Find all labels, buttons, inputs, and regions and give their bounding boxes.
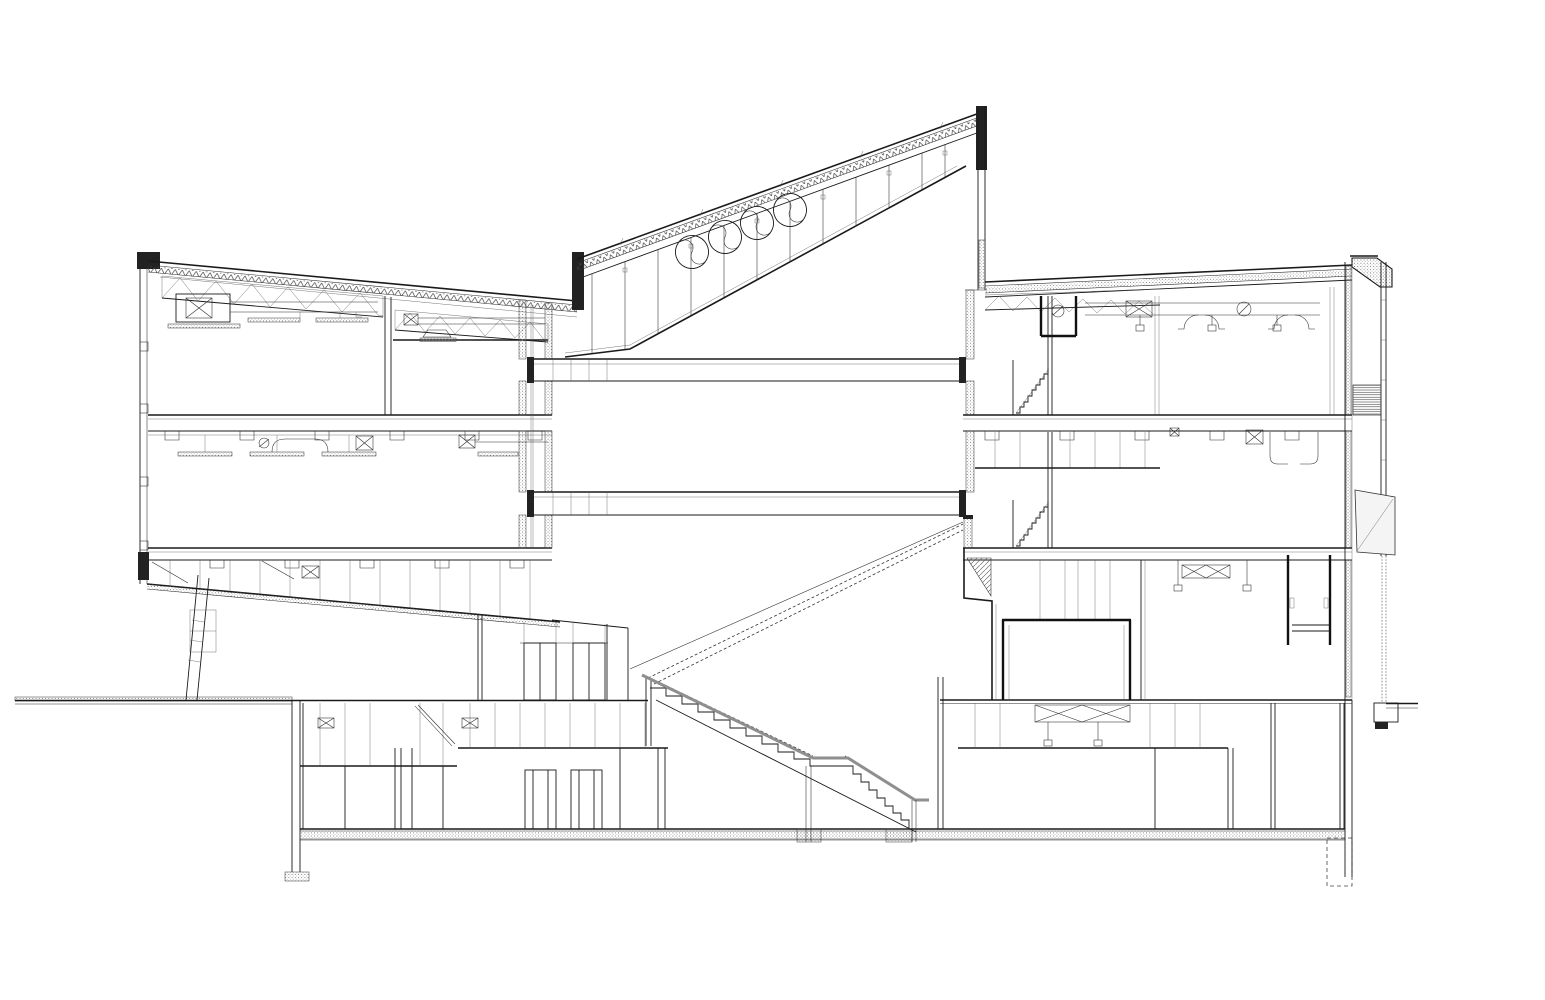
atrium-bridge-upper xyxy=(527,357,966,383)
ceiling-diffuser-2 xyxy=(316,318,368,322)
ceiling-diffuser-1 xyxy=(248,318,300,322)
ground-floor-facade xyxy=(478,615,628,700)
basement-right-retaining-wall xyxy=(1345,700,1352,877)
clerestory xyxy=(565,106,987,357)
clerestory-roof-soffit xyxy=(583,130,985,277)
duct-elbows-2 xyxy=(1268,315,1315,329)
basement-slab-hatch xyxy=(300,831,1345,839)
right-tower xyxy=(963,256,1395,703)
hanging-diffusers xyxy=(1136,315,1281,331)
dashed-footing-outline xyxy=(1327,838,1352,886)
atrium-west-wall xyxy=(519,300,552,548)
stair-stringer-soffit xyxy=(656,700,916,832)
shaft-box xyxy=(1288,555,1330,645)
ahu-base-pad xyxy=(168,324,240,328)
basement-left-retaining-wall xyxy=(292,700,300,872)
top-floor-partition xyxy=(385,296,391,415)
right-floor-3 xyxy=(963,415,1352,468)
east-wall-hatch xyxy=(979,240,985,288)
stair-handrail xyxy=(642,675,929,800)
ground-hall xyxy=(1002,620,1131,700)
right-plinth-block xyxy=(1374,703,1398,722)
left-wall-footing xyxy=(285,872,309,881)
ceiling-hangers xyxy=(320,703,645,766)
atrium xyxy=(519,106,987,842)
tall-columns xyxy=(1155,287,1334,415)
left-facade-base-block xyxy=(138,552,149,580)
roof-top-line xyxy=(148,261,577,301)
outer-skin-lower xyxy=(1382,556,1386,703)
fan-circle-1 xyxy=(670,230,715,275)
right-roof xyxy=(985,265,1352,297)
clerestory-mullions xyxy=(592,145,945,354)
beam-downstands xyxy=(165,431,542,440)
stair-footing-pad-2 xyxy=(886,829,912,842)
left-level2-hvac xyxy=(178,435,548,456)
duct-elbows-1 xyxy=(1178,315,1225,329)
drawing-canvas xyxy=(0,0,1545,1000)
roof-insulation-hatch xyxy=(148,266,577,312)
basement-door-frames xyxy=(525,770,602,829)
soffit-braces xyxy=(152,561,294,583)
site-ground xyxy=(15,697,1418,886)
duct-loop xyxy=(272,439,328,452)
double-cross-box-2f xyxy=(1174,560,1251,591)
left-roof xyxy=(148,261,577,317)
fascia-line xyxy=(552,620,628,628)
basement xyxy=(285,677,1352,881)
basement-right-rooms xyxy=(938,677,1352,877)
louvre-block xyxy=(1353,385,1381,415)
right-ceiling-hangers xyxy=(975,703,1200,748)
right-tower-stairs xyxy=(1013,296,1052,548)
left-wing xyxy=(137,252,628,700)
basement-diagonal-duct xyxy=(415,705,455,746)
mullion-clips xyxy=(623,151,947,272)
basement-stair xyxy=(642,675,929,842)
plant-niche xyxy=(1041,296,1076,336)
atrium-corbel-wall xyxy=(964,548,996,700)
clerestory-west-post xyxy=(572,252,584,310)
stair-footing-pad-1 xyxy=(797,829,821,842)
tribune-edge-line xyxy=(630,522,963,669)
basement-left-rooms xyxy=(300,703,668,829)
right-top-hvac xyxy=(1041,287,1334,415)
roof-soffit-line xyxy=(160,277,577,317)
tribune-hidden-steps-2 xyxy=(654,530,963,684)
duct-cross-box xyxy=(318,718,478,728)
double-cross-duct-box xyxy=(1035,705,1130,746)
left-wing-underside xyxy=(147,560,560,627)
elbow-ducts-3f xyxy=(1270,432,1318,464)
entrance-door-2 xyxy=(573,643,605,700)
right-basement-partitions xyxy=(1155,703,1344,829)
entrance-door-1 xyxy=(524,643,556,700)
soffit-panel-joints xyxy=(170,560,530,619)
tribune-hidden-steps-1 xyxy=(648,524,963,678)
atrium-bridge-lower xyxy=(527,490,966,517)
section-drawing xyxy=(0,0,1545,1000)
ceiling-hangers-3f xyxy=(995,432,1145,468)
tribune-stair xyxy=(630,522,963,684)
right-floor-2 xyxy=(963,548,1352,700)
stair-hidden-guard xyxy=(648,677,915,799)
right-plinth-footing xyxy=(1375,722,1388,729)
left-floor-3 xyxy=(148,415,552,440)
clerestory-insulation-hatch xyxy=(577,116,985,271)
east-facade xyxy=(1345,262,1395,703)
ceiling-hangers-2f xyxy=(1040,560,1110,620)
